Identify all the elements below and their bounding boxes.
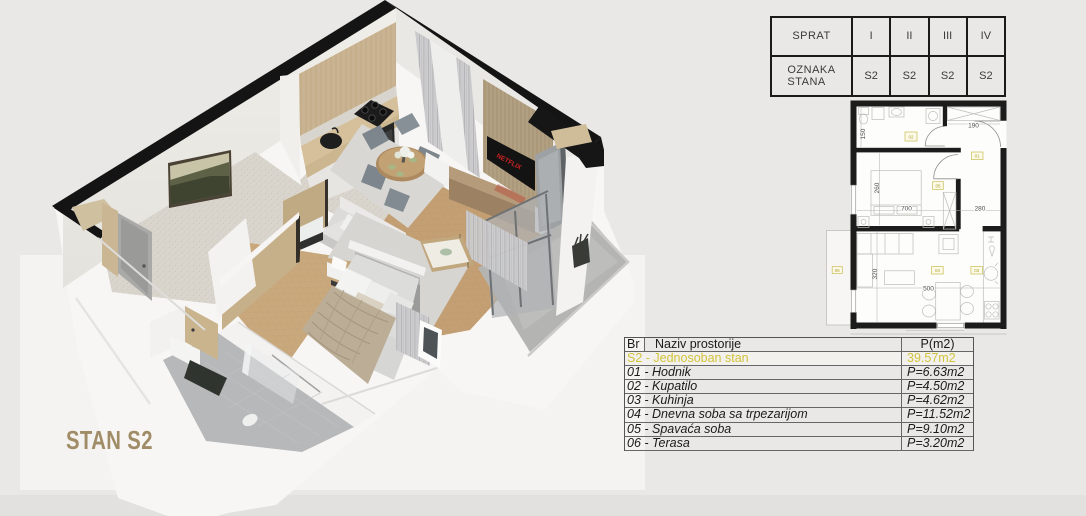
svg-text:06: 06 bbox=[835, 268, 841, 273]
svg-text:700: 700 bbox=[901, 206, 912, 213]
svg-text:150: 150 bbox=[860, 128, 867, 139]
svg-text:280: 280 bbox=[975, 206, 986, 213]
svg-text:320: 320 bbox=[872, 268, 879, 279]
svg-text:05: 05 bbox=[935, 183, 941, 188]
svg-text:260: 260 bbox=[874, 182, 881, 193]
svg-text:04: 04 bbox=[935, 268, 941, 273]
svg-text:500: 500 bbox=[923, 286, 934, 293]
svg-text:190: 190 bbox=[968, 123, 979, 130]
svg-text:03: 03 bbox=[974, 268, 980, 273]
svg-text:02: 02 bbox=[908, 134, 914, 139]
svg-text:01: 01 bbox=[975, 154, 981, 159]
